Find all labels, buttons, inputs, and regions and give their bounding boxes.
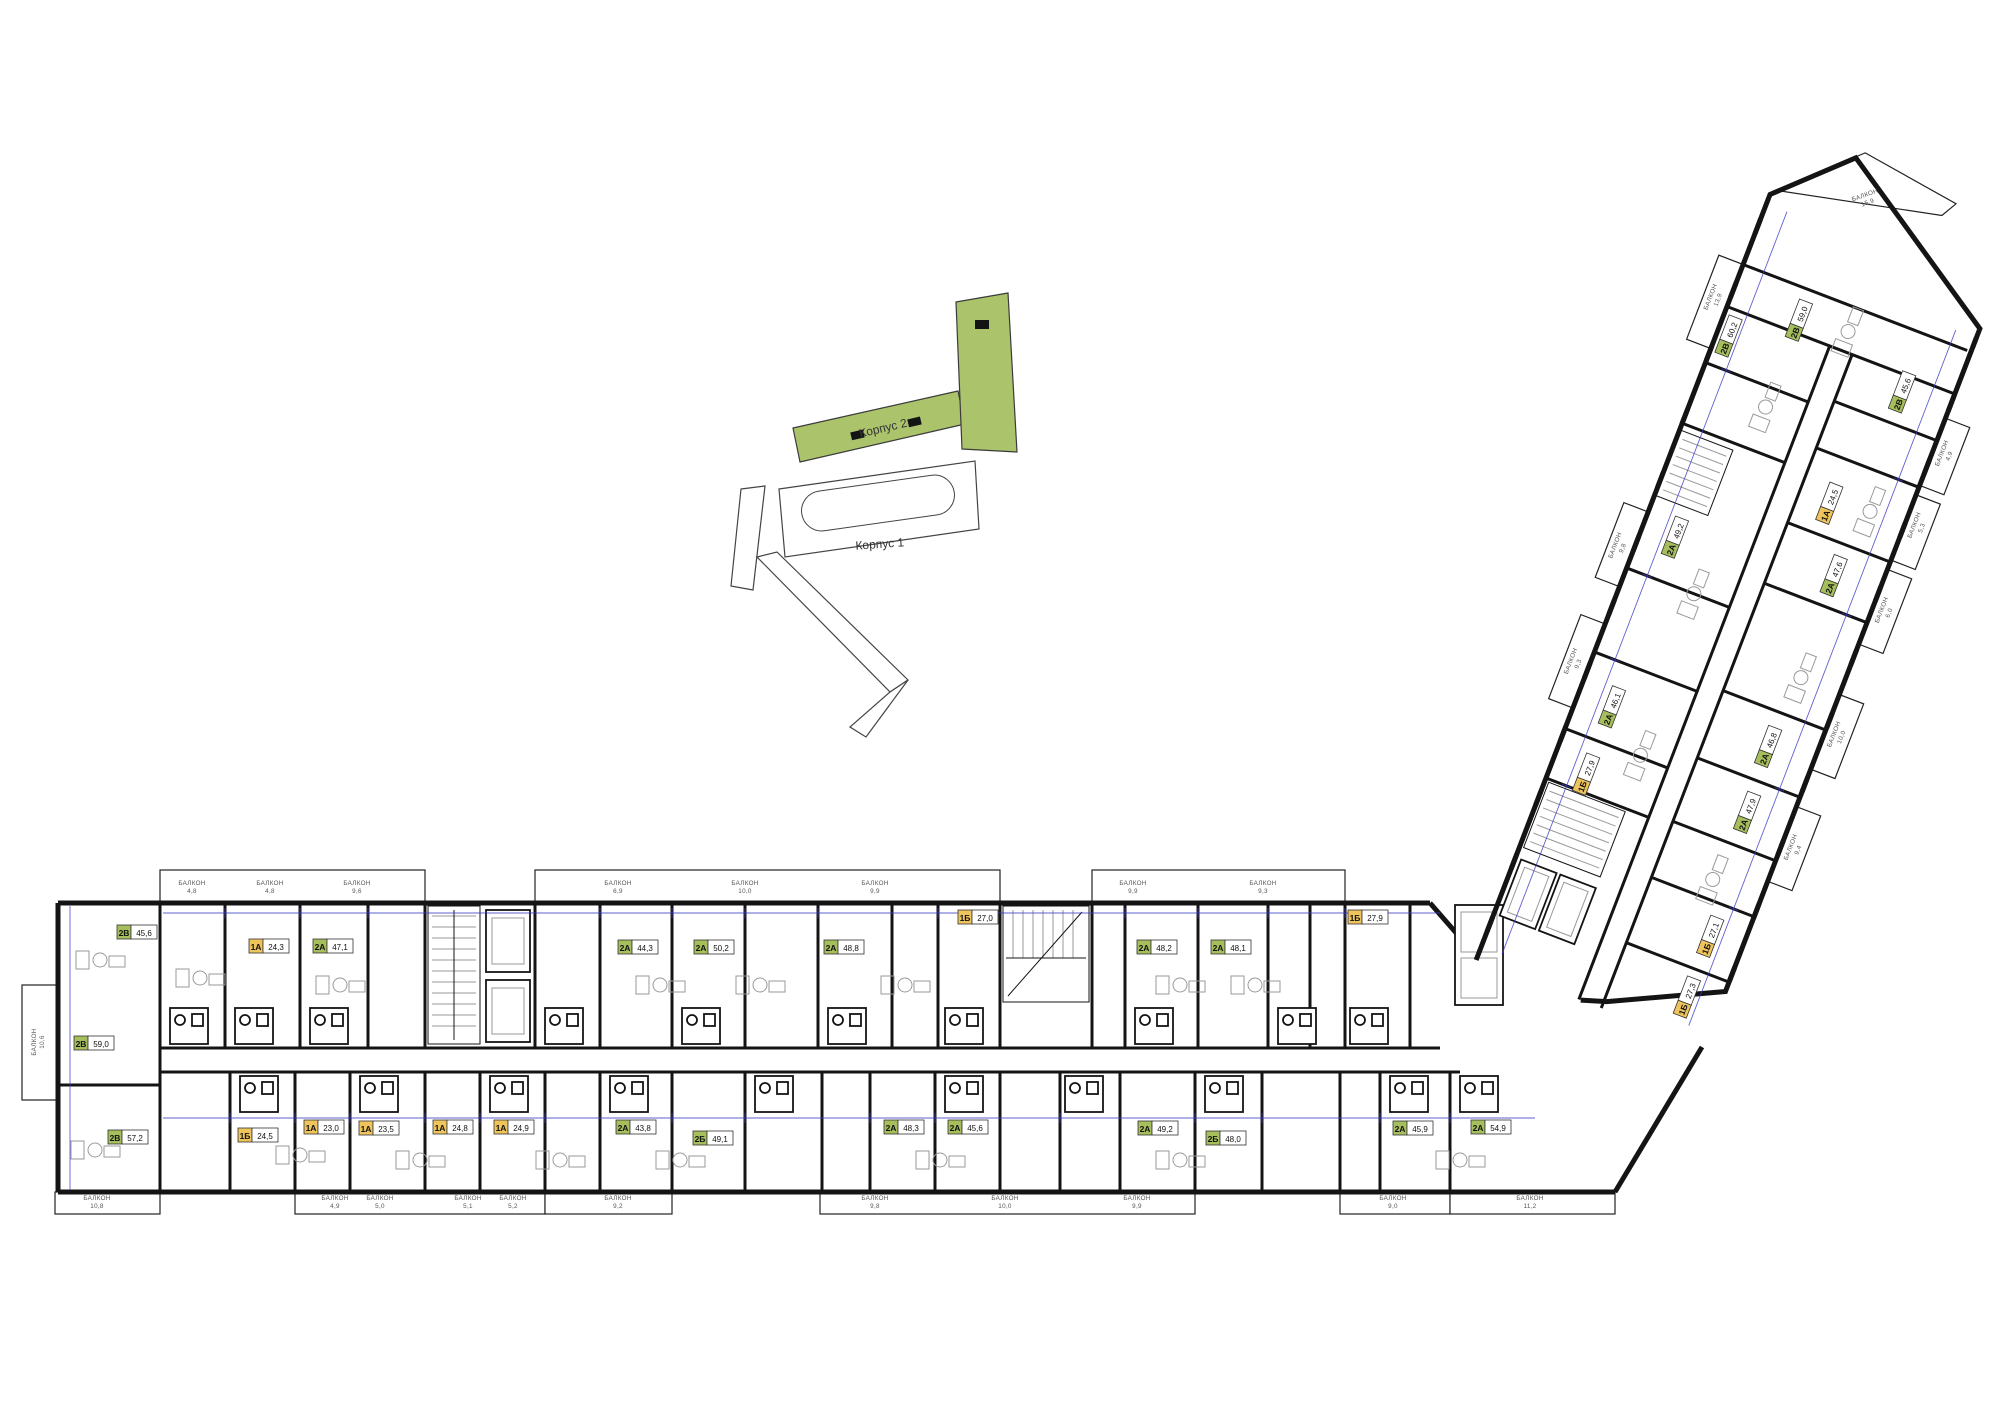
unit-area: 24,8	[452, 1124, 468, 1133]
svg-text:4,9: 4,9	[330, 1203, 340, 1210]
unit-type: 2А	[1395, 1124, 1406, 1134]
unit-area: 48,2	[1156, 944, 1172, 953]
svg-text:9,3: 9,3	[1258, 888, 1268, 895]
unit-type: 2А	[1140, 1124, 1151, 1134]
main-building-strip	[22, 870, 1702, 1214]
svg-text:БАЛКОН: БАЛКОН	[1516, 1195, 1543, 1202]
building-1-lower-arm	[850, 680, 908, 737]
building-1-label: Корпус 1	[855, 535, 905, 552]
unit-area: 44,3	[637, 944, 653, 953]
svg-text:9,8: 9,8	[870, 1203, 880, 1210]
unit-badge[interactable]: 1А23,5	[359, 1121, 399, 1135]
unit-badge[interactable]: 1А24,5	[1816, 482, 1843, 524]
unit-badge[interactable]: 1А24,3	[249, 939, 289, 953]
svg-text:10,6: 10,6	[39, 1035, 46, 1049]
unit-badge[interactable]: 2Б49,1	[693, 1131, 733, 1145]
unit-area: 48,8	[843, 944, 859, 953]
svg-text:9,2: 9,2	[613, 1203, 623, 1210]
unit-area: 45,6	[967, 1124, 983, 1133]
svg-text:БАЛКОН: БАЛКОН	[991, 1195, 1018, 1202]
svg-text:БАЛКОН: БАЛКОН	[366, 1195, 393, 1202]
svg-text:9,6: 9,6	[352, 888, 362, 895]
stair-core	[428, 906, 530, 1044]
stair-core-upper	[1656, 430, 1732, 515]
unit-type: 2В	[119, 928, 130, 938]
unit-badge[interactable]: 1А24,9	[494, 1120, 534, 1134]
svg-text:5,2: 5,2	[508, 1203, 518, 1210]
balcony-band	[1920, 418, 1970, 495]
svg-text:5,1: 5,1	[463, 1203, 473, 1210]
unit-type: 2А	[315, 942, 326, 952]
unit-type: 1Б	[240, 1131, 251, 1141]
unit-badge[interactable]: 1Б27,1	[1696, 915, 1723, 957]
unit-badge[interactable]: 2А48,1	[1211, 940, 1251, 954]
svg-text:БАЛКОН: БАЛКОН	[1249, 880, 1276, 887]
unit-type: 1А	[251, 942, 262, 952]
unit-type: 1А	[361, 1124, 372, 1134]
unit-area: 47,1	[332, 943, 348, 952]
unit-type: 1А	[496, 1123, 507, 1133]
unit-type: 2А	[620, 943, 631, 953]
unit-area: 24,9	[513, 1124, 529, 1133]
balcony-band	[1891, 495, 1940, 570]
unit-badge[interactable]: 1Б27,9	[1348, 910, 1388, 924]
unit-badge[interactable]: 2А48,3	[884, 1120, 924, 1134]
unit-area: 23,0	[323, 1124, 339, 1133]
svg-text:10,8: 10,8	[90, 1203, 104, 1210]
unit-badge[interactable]: 2В59,0	[1785, 299, 1812, 341]
unit-badge[interactable]: 2В45,6	[117, 925, 157, 939]
unit-type: 2А	[1473, 1123, 1484, 1133]
unit-area: 54,9	[1490, 1124, 1506, 1133]
svg-text:БАЛКОН: БАЛКОН	[256, 880, 283, 887]
unit-type: 2А	[886, 1123, 897, 1133]
svg-text:БАЛКОН: БАЛКОН	[83, 1195, 110, 1202]
unit-type: 2А	[1213, 943, 1224, 953]
building-1-left-arm	[731, 486, 765, 590]
unit-area: 50,2	[713, 944, 729, 953]
unit-area: 45,6	[136, 929, 152, 938]
unit-badge[interactable]: 2А47,9	[1733, 791, 1760, 833]
unit-badge[interactable]: 2А44,3	[618, 940, 658, 954]
unit-type: 1Б	[1350, 913, 1361, 923]
svg-text:9,0: 9,0	[1388, 1203, 1398, 1210]
svg-text:БАЛКОН: БАЛКОН	[499, 1195, 526, 1202]
unit-area: 59,0	[93, 1040, 109, 1049]
svg-text:БАЛКОН: БАЛКОН	[604, 1195, 631, 1202]
wing-building: 1Б27,3 1Б27,1 2А47,9 2А46,8 2А47,6 1А24,…	[1452, 117, 2000, 1057]
unit-badge[interactable]: 2В59,0	[74, 1036, 114, 1050]
unit-area: 23,5	[378, 1125, 394, 1134]
stair-core	[1498, 782, 1625, 944]
svg-text:6,9: 6,9	[613, 888, 623, 895]
svg-text:БАЛКОН: БАЛКОН	[1119, 880, 1146, 887]
svg-text:4,8: 4,8	[187, 888, 197, 895]
svg-text:5,0: 5,0	[375, 1203, 385, 1210]
unit-area: 49,1	[712, 1135, 728, 1144]
unit-badge[interactable]: 1А24,8	[433, 1120, 473, 1134]
svg-text:БАЛКОН: БАЛКОН	[604, 880, 631, 887]
unit-badge[interactable]: 1Б24,5	[238, 1128, 278, 1142]
stair-core	[1003, 906, 1089, 1002]
unit-area: 48,0	[1225, 1135, 1241, 1144]
svg-text:БАЛКОН: БАЛКОН	[861, 880, 888, 887]
unit-badge[interactable]: 2А49,2	[1138, 1121, 1178, 1135]
floor-plan-page: Корпус 2 Корпус 1	[0, 0, 2000, 1415]
building-1-diagonal-arm	[757, 552, 908, 692]
svg-text:БАЛКОН: БАЛКОН	[178, 880, 205, 887]
unit-area: 43,8	[635, 1124, 651, 1133]
svg-text:БАЛКОН: БАЛКОН	[1379, 1195, 1406, 1202]
unit-badge[interactable]: 2А49,2	[1661, 516, 1688, 558]
svg-text:10,0: 10,0	[998, 1203, 1012, 1210]
svg-text:9,9: 9,9	[1132, 1203, 1142, 1210]
unit-badge[interactable]: 2А50,2	[694, 940, 734, 954]
svg-text:10,0: 10,0	[738, 888, 752, 895]
unit-badge[interactable]: 2А47,1	[313, 939, 353, 953]
core-mark	[975, 320, 989, 329]
unit-type: 2А	[618, 1123, 629, 1133]
unit-badge[interactable]: 2А48,2	[1137, 940, 1177, 954]
svg-text:БАЛКОН: БАЛКОН	[321, 1195, 348, 1202]
unit-type: 1Б	[960, 913, 971, 923]
svg-text:БАЛКОН: БАЛКОН	[731, 880, 758, 887]
unit-badge[interactable]: 1Б27,0	[958, 910, 998, 924]
svg-text:4,8: 4,8	[265, 888, 275, 895]
unit-area: 48,3	[903, 1124, 919, 1133]
unit-badge[interactable]: 2А47,6	[1820, 554, 1847, 596]
unit-area: 48,1	[1230, 944, 1246, 953]
unit-type: 2А	[826, 943, 837, 953]
unit-type: 2А	[696, 943, 707, 953]
svg-text:БАЛКОН: БАЛКОН	[1123, 1195, 1150, 1202]
svg-text:9,9: 9,9	[1128, 888, 1138, 895]
unit-badge[interactable]: 2А45,6	[948, 1120, 988, 1134]
unit-badge[interactable]: 1А23,0	[304, 1120, 344, 1134]
site-map: Корпус 2 Корпус 1	[731, 293, 1017, 737]
unit-type: 2Б	[695, 1134, 706, 1144]
wing-dividers	[1501, 265, 1971, 983]
unit-badge[interactable]: 2А48,8	[824, 940, 864, 954]
unit-type: 2В	[76, 1039, 87, 1049]
unit-dividers-bottom	[230, 1072, 1450, 1192]
unit-area: 49,2	[1157, 1125, 1173, 1134]
unit-badge[interactable]: 2В57,2	[108, 1130, 148, 1144]
unit-area: 27,0	[977, 914, 993, 923]
svg-text:9,9: 9,9	[870, 888, 880, 895]
unit-type: 2Б	[1208, 1134, 1219, 1144]
svg-text:БАЛКОН: БАЛКОН	[454, 1195, 481, 1202]
furniture-hints	[71, 951, 1485, 1169]
unit-area: 45,9	[1412, 1125, 1428, 1134]
svg-text:БАЛКОН: БАЛКОН	[343, 880, 370, 887]
floor-plan-canvas: Корпус 2 Корпус 1	[0, 0, 2000, 1415]
unit-type: 1А	[435, 1123, 446, 1133]
unit-area: 57,2	[127, 1134, 143, 1143]
elevator[interactable]	[486, 910, 530, 972]
svg-text:БАЛКОН: БАЛКОН	[31, 1028, 38, 1055]
unit-badge[interactable]: 2А43,8	[616, 1120, 656, 1134]
unit-area: 27,9	[1367, 914, 1383, 923]
svg-text:БАЛКОН: БАЛКОН	[861, 1195, 888, 1202]
unit-area: 24,3	[268, 943, 284, 952]
unit-badge[interactable]: 2Б48,0	[1206, 1131, 1246, 1145]
building-2-tower[interactable]	[956, 293, 1017, 452]
strip-balcony-labels: БАЛКОН4,8 БАЛКОН4,8 БАЛКОН9,6 БАЛКОН6,9 …	[31, 880, 1544, 1210]
unit-type: 1А	[306, 1123, 317, 1133]
unit-badge[interactable]: 2В45,6	[1888, 371, 1915, 413]
unit-type: 2В	[110, 1133, 121, 1143]
unit-type: 2А	[950, 1123, 961, 1133]
unit-badge[interactable]: 2А46,8	[1754, 725, 1781, 767]
elevator[interactable]	[486, 980, 530, 1042]
unit-area: 24,5	[257, 1132, 273, 1141]
unit-badge[interactable]: 2А54,9	[1471, 1120, 1511, 1134]
svg-text:11,2: 11,2	[1524, 1203, 1537, 1210]
unit-type: 2А	[1139, 943, 1150, 953]
unit-badge[interactable]: 2А45,9	[1393, 1121, 1433, 1135]
